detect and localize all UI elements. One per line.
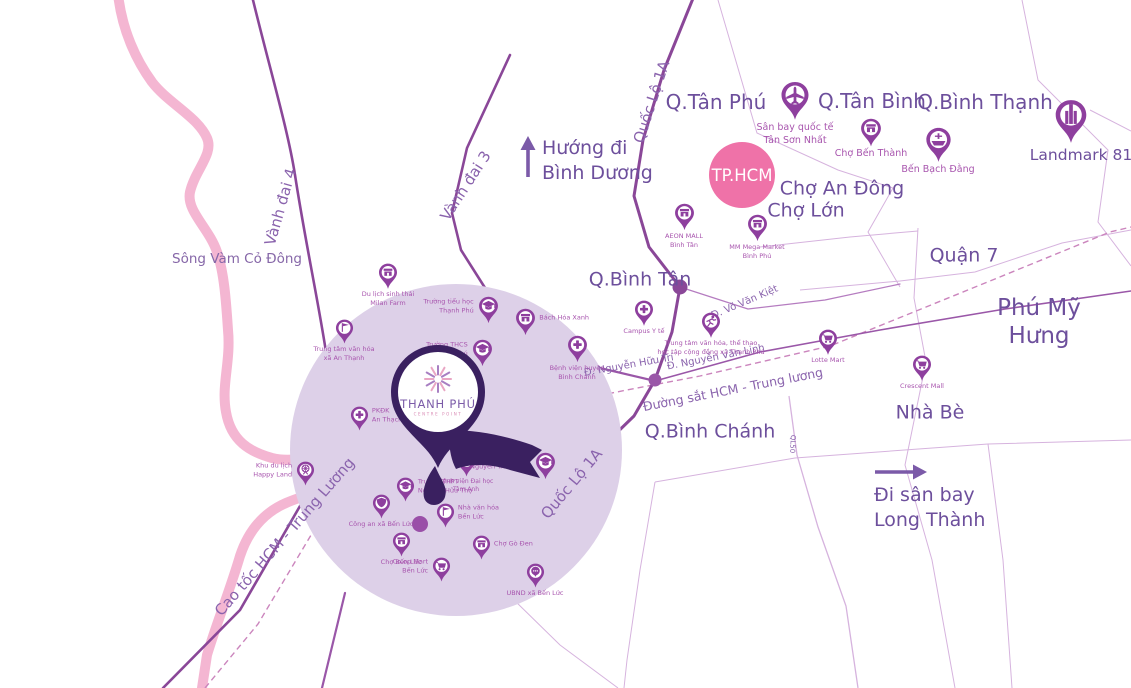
roads <box>163 0 1131 688</box>
road-quoc-lo-1a <box>600 0 694 449</box>
map-base-layer <box>0 0 1131 688</box>
location-map: Q.Tân PhúQ.Tân BìnhQ.Bình ThạnhChợ An Đô… <box>0 0 1131 688</box>
right-arrow-icon <box>875 465 927 480</box>
road-south <box>322 593 345 688</box>
town-dot-ben-luc <box>412 516 428 532</box>
road-vanh-dai-4 <box>252 0 333 405</box>
road-nguyen-van-linh <box>655 291 1131 381</box>
zone-circle <box>290 284 622 616</box>
tphcm-badge-label: TP.HCM <box>712 166 773 185</box>
district-boundaries <box>512 0 1131 688</box>
junction-q-binh-tan <box>673 280 688 295</box>
road-vo-van-kiet <box>680 284 900 309</box>
tphcm-badge: TP.HCM <box>709 142 775 208</box>
up-arrow-icon <box>521 136 536 177</box>
junction-ql1a-nvl <box>649 374 662 387</box>
